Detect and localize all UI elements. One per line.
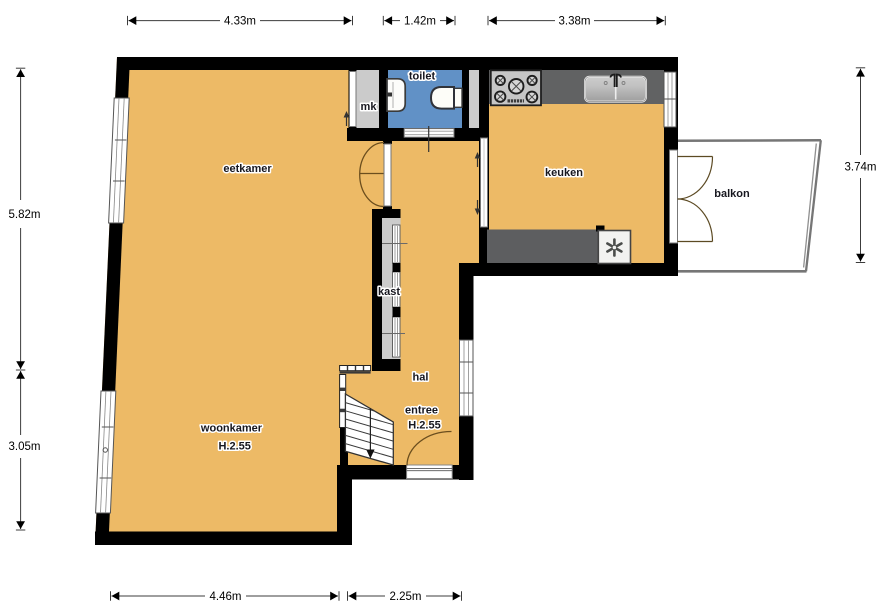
svg-text:mk: mk [361,101,378,113]
svg-text:eetkamer: eetkamer [223,163,272,175]
svg-text:5.82m: 5.82m [9,209,41,221]
svg-text:kast: kast [378,286,400,298]
svg-text:entree: entree [405,405,438,417]
svg-text:keuken: keuken [545,167,583,179]
svg-text:2.25m: 2.25m [390,591,422,603]
svg-text:H.2.55: H.2.55 [408,420,440,432]
svg-text:H.2.55: H.2.55 [218,441,250,453]
svg-text:toilet: toilet [409,71,436,83]
svg-text:woonkamer: woonkamer [200,423,263,435]
svg-text:balkon: balkon [714,188,750,200]
svg-text:1.42m: 1.42m [404,16,436,28]
svg-text:4.46m: 4.46m [210,591,242,603]
svg-text:3.38m: 3.38m [559,16,591,28]
svg-text:3.74m: 3.74m [845,162,877,174]
svg-text:hal: hal [413,372,429,384]
svg-text:4.33m: 4.33m [224,16,256,28]
svg-text:3.05m: 3.05m [9,441,41,453]
